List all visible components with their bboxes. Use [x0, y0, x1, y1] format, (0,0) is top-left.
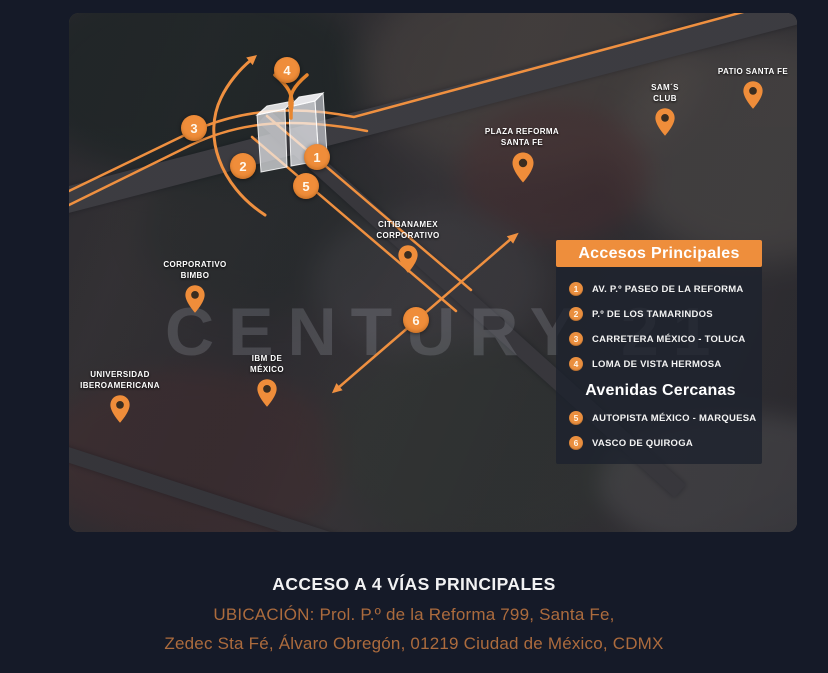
legend-item-tamarindos: 2 P.º DE LOS TAMARINDOS	[569, 307, 752, 321]
legend-item-label: AV. P.º PASEO DE LA REFORMA	[592, 284, 744, 295]
location-pin-icon	[397, 244, 419, 274]
legend-body: 1 AV. P.º PASEO DE LA REFORMA 2 P.º DE L…	[556, 267, 762, 464]
legend-title: Accesos Principales	[556, 240, 762, 267]
legend-num-badge: 2	[569, 307, 583, 321]
legend-num-badge: 3	[569, 332, 583, 346]
building-left-tower-front	[257, 109, 287, 172]
location-pin-icon	[742, 80, 764, 110]
poi-patio-santa-fe: PATIO SANTA FE	[742, 80, 764, 110]
poi-universidad-iberoamericana: UNIVERSIDADIBEROAMERICANA	[109, 394, 131, 424]
legend-item-vasco-quiroga: 6 VASCO DE QUIROGA	[569, 436, 752, 450]
legend-panel: Accesos Principales 1 AV. P.º PASEO DE L…	[556, 240, 762, 464]
poi-ibm-de-mexico: IBM DEMÉXICO	[256, 378, 278, 408]
legend-item-reforma: 1 AV. P.º PASEO DE LA REFORMA	[569, 282, 752, 296]
legend-num-badge: 6	[569, 436, 583, 450]
legend-item-autopista-marquesa: 5 AUTOPISTA MÉXICO - MARQUESA	[569, 411, 752, 425]
access-marker-1: 1	[304, 144, 330, 170]
poi-label: IBM DEMÉXICO	[250, 354, 284, 376]
legend-num-badge: 1	[569, 282, 583, 296]
flyer-page: CENTURY 21	[0, 0, 828, 673]
legend-item-label: CARRETERA MÉXICO - TOLUCA	[592, 334, 746, 345]
poi-plaza-reforma-santa-fe: PLAZA REFORMASANTA FE	[511, 151, 533, 181]
location-pin-icon	[109, 394, 131, 424]
poi-label: CITIBANAMEXCORPORATIVO	[376, 220, 439, 242]
property-building-3d	[249, 73, 344, 178]
poi-citibanamex-corporativo: CITIBANAMEXCORPORATIVO	[397, 244, 419, 274]
footer-address-line1: UBICACIÓN: Prol. P.º de la Reforma 799, …	[0, 605, 828, 625]
poi-label: UNIVERSIDADIBEROAMERICANA	[80, 370, 160, 392]
poi-label: PLAZA REFORMASANTA FE	[485, 127, 559, 149]
legend-item-label: VASCO DE QUIROGA	[592, 438, 693, 449]
access-marker-4: 4	[274, 57, 300, 83]
legend-item-label: P.º DE LOS TAMARINDOS	[592, 309, 713, 320]
poi-corporativo-bimbo: CORPORATIVOBIMBO	[184, 284, 206, 314]
legend-num-badge: 4	[569, 357, 583, 371]
satellite-map: CENTURY 21	[69, 13, 797, 532]
access-marker-3: 3	[181, 115, 207, 141]
access-marker-2: 2	[230, 153, 256, 179]
legend-item-mexico-toluca: 3 CARRETERA MÉXICO - TOLUCA	[569, 332, 752, 346]
legend-item-label: LOMA DE VISTA HERMOSA	[592, 359, 721, 370]
legend-item-loma-vista-hermosa: 4 LOMA DE VISTA HERMOSA	[569, 357, 752, 371]
location-pin-icon	[256, 378, 278, 408]
legend-num-badge: 5	[569, 411, 583, 425]
location-pin-icon	[511, 151, 535, 184]
access-marker-6: 6	[403, 307, 429, 333]
poi-label: PATIO SANTA FE	[718, 67, 788, 78]
poi-label: SAM´SCLUB	[651, 83, 679, 105]
footer-title: ACCESO A 4 VÍAS PRINCIPALES	[0, 574, 828, 595]
poi-sams-club: SAM´SCLUB	[654, 107, 676, 137]
location-pin-icon	[184, 284, 206, 314]
legend-item-label: AUTOPISTA MÉXICO - MARQUESA	[592, 413, 756, 424]
legend-subtitle: Avenidas Cercanas	[569, 382, 752, 400]
poi-label: CORPORATIVOBIMBO	[163, 260, 226, 282]
location-pin-icon	[654, 107, 676, 137]
footer-address-line2: Zedec Sta Fé, Álvaro Obregón, 01219 Ciud…	[0, 634, 828, 654]
access-marker-5: 5	[293, 173, 319, 199]
